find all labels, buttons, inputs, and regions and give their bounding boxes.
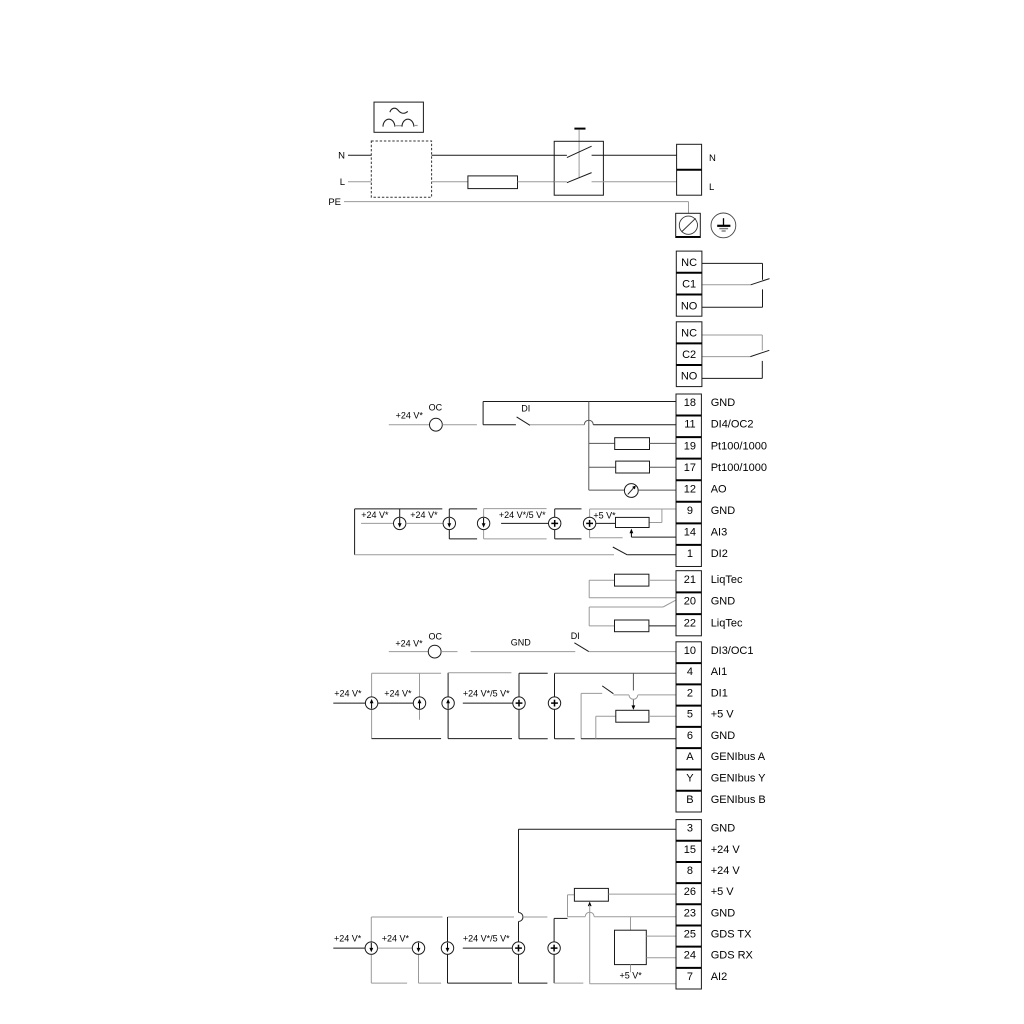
svg-text:+24 V*: +24 V* [334,934,362,944]
svg-text:GND: GND [711,907,736,919]
svg-text:22: 22 [684,617,696,629]
svg-text:+24 V: +24 V [711,844,741,856]
svg-text:L: L [709,182,714,193]
svg-text:+24 V*/5 V*: +24 V*/5 V* [499,510,546,520]
svg-text:14: 14 [684,527,696,539]
svg-text:+5 V: +5 V [711,709,735,721]
svg-text:26: 26 [684,886,696,898]
svg-text:GND: GND [711,505,736,517]
svg-text:+24 V*: +24 V* [410,510,438,520]
svg-text:17: 17 [684,462,696,474]
svg-text:+24 V*: +24 V* [334,689,362,699]
svg-text:GND: GND [711,397,736,409]
svg-text:3: 3 [687,823,693,835]
svg-text:C2: C2 [682,349,696,361]
svg-text:LiqTec: LiqTec [711,617,743,629]
svg-text:AI3: AI3 [711,527,728,539]
svg-text:11: 11 [684,419,695,431]
svg-text:DI: DI [521,403,530,413]
svg-text:+24 V*/5 V*: +24 V*/5 V* [463,934,510,944]
svg-text:21: 21 [684,574,696,586]
svg-text:18: 18 [684,397,696,409]
svg-text:NC: NC [681,257,697,269]
svg-text:AO: AO [711,483,727,495]
svg-text:GND: GND [711,596,736,608]
svg-text:19: 19 [684,440,696,452]
svg-text:DI: DI [571,631,580,641]
svg-text:N: N [338,151,345,162]
svg-text:+24 V*: +24 V* [382,934,410,944]
svg-text:1: 1 [687,548,693,560]
svg-text:Pt100/1000: Pt100/1000 [711,462,767,474]
svg-text:6: 6 [687,730,693,742]
svg-text:23: 23 [684,907,696,919]
svg-text:NC: NC [681,328,697,340]
svg-text:GND: GND [711,823,736,835]
svg-text:DI4/OC2: DI4/OC2 [711,419,754,431]
svg-text:OC: OC [429,403,443,413]
svg-text:+24 V: +24 V [711,865,741,877]
svg-text:B: B [686,794,693,806]
svg-text:GENIbus A: GENIbus A [711,751,766,763]
svg-text:2: 2 [687,687,693,699]
svg-text:Pt100/1000: Pt100/1000 [711,440,767,452]
svg-text:AI2: AI2 [711,971,728,983]
svg-text:NO: NO [681,371,698,383]
svg-text:5: 5 [687,709,693,721]
svg-text:LiqTec: LiqTec [711,574,743,586]
svg-text:4: 4 [687,666,693,678]
svg-text:GENIbus B: GENIbus B [711,794,766,806]
svg-text:24: 24 [684,950,696,962]
svg-text:GENIbus Y: GENIbus Y [711,772,766,784]
svg-text:GDS TX: GDS TX [711,928,752,940]
svg-text:+5 V*: +5 V* [620,970,643,980]
svg-text:GND: GND [511,637,532,647]
svg-text:L: L [340,177,345,188]
svg-text:DI3/OC1: DI3/OC1 [711,645,754,657]
svg-text:GDS RX: GDS RX [711,950,754,962]
svg-text:+24 V*: +24 V* [384,689,412,699]
svg-text:25: 25 [684,928,696,940]
svg-text:7: 7 [687,971,693,983]
svg-text:10: 10 [684,645,696,657]
svg-text:OC: OC [429,631,443,641]
svg-text:DI2: DI2 [711,548,728,560]
svg-text:+24 V*: +24 V* [361,510,389,520]
svg-text:+5 V*: +5 V* [593,510,616,520]
svg-text:15: 15 [684,844,696,856]
svg-text:PE: PE [328,197,341,208]
svg-text:A: A [686,751,694,763]
svg-text:Y: Y [686,772,694,784]
svg-text:N: N [709,153,716,164]
svg-text:C1: C1 [682,279,696,291]
svg-text:9: 9 [687,505,693,517]
svg-text:DI1: DI1 [711,687,728,699]
svg-text:GND: GND [711,730,736,742]
svg-text:AI1: AI1 [711,666,728,678]
svg-text:+5 V: +5 V [711,886,735,898]
svg-text:12: 12 [684,483,696,495]
svg-text:+24 V*: +24 V* [396,411,424,421]
svg-text:20: 20 [684,596,696,608]
svg-text:+24 V*/5 V*: +24 V*/5 V* [463,689,510,699]
svg-text:+24 V*: +24 V* [395,638,423,648]
svg-text:NO: NO [681,300,698,312]
svg-text:8: 8 [687,865,693,877]
